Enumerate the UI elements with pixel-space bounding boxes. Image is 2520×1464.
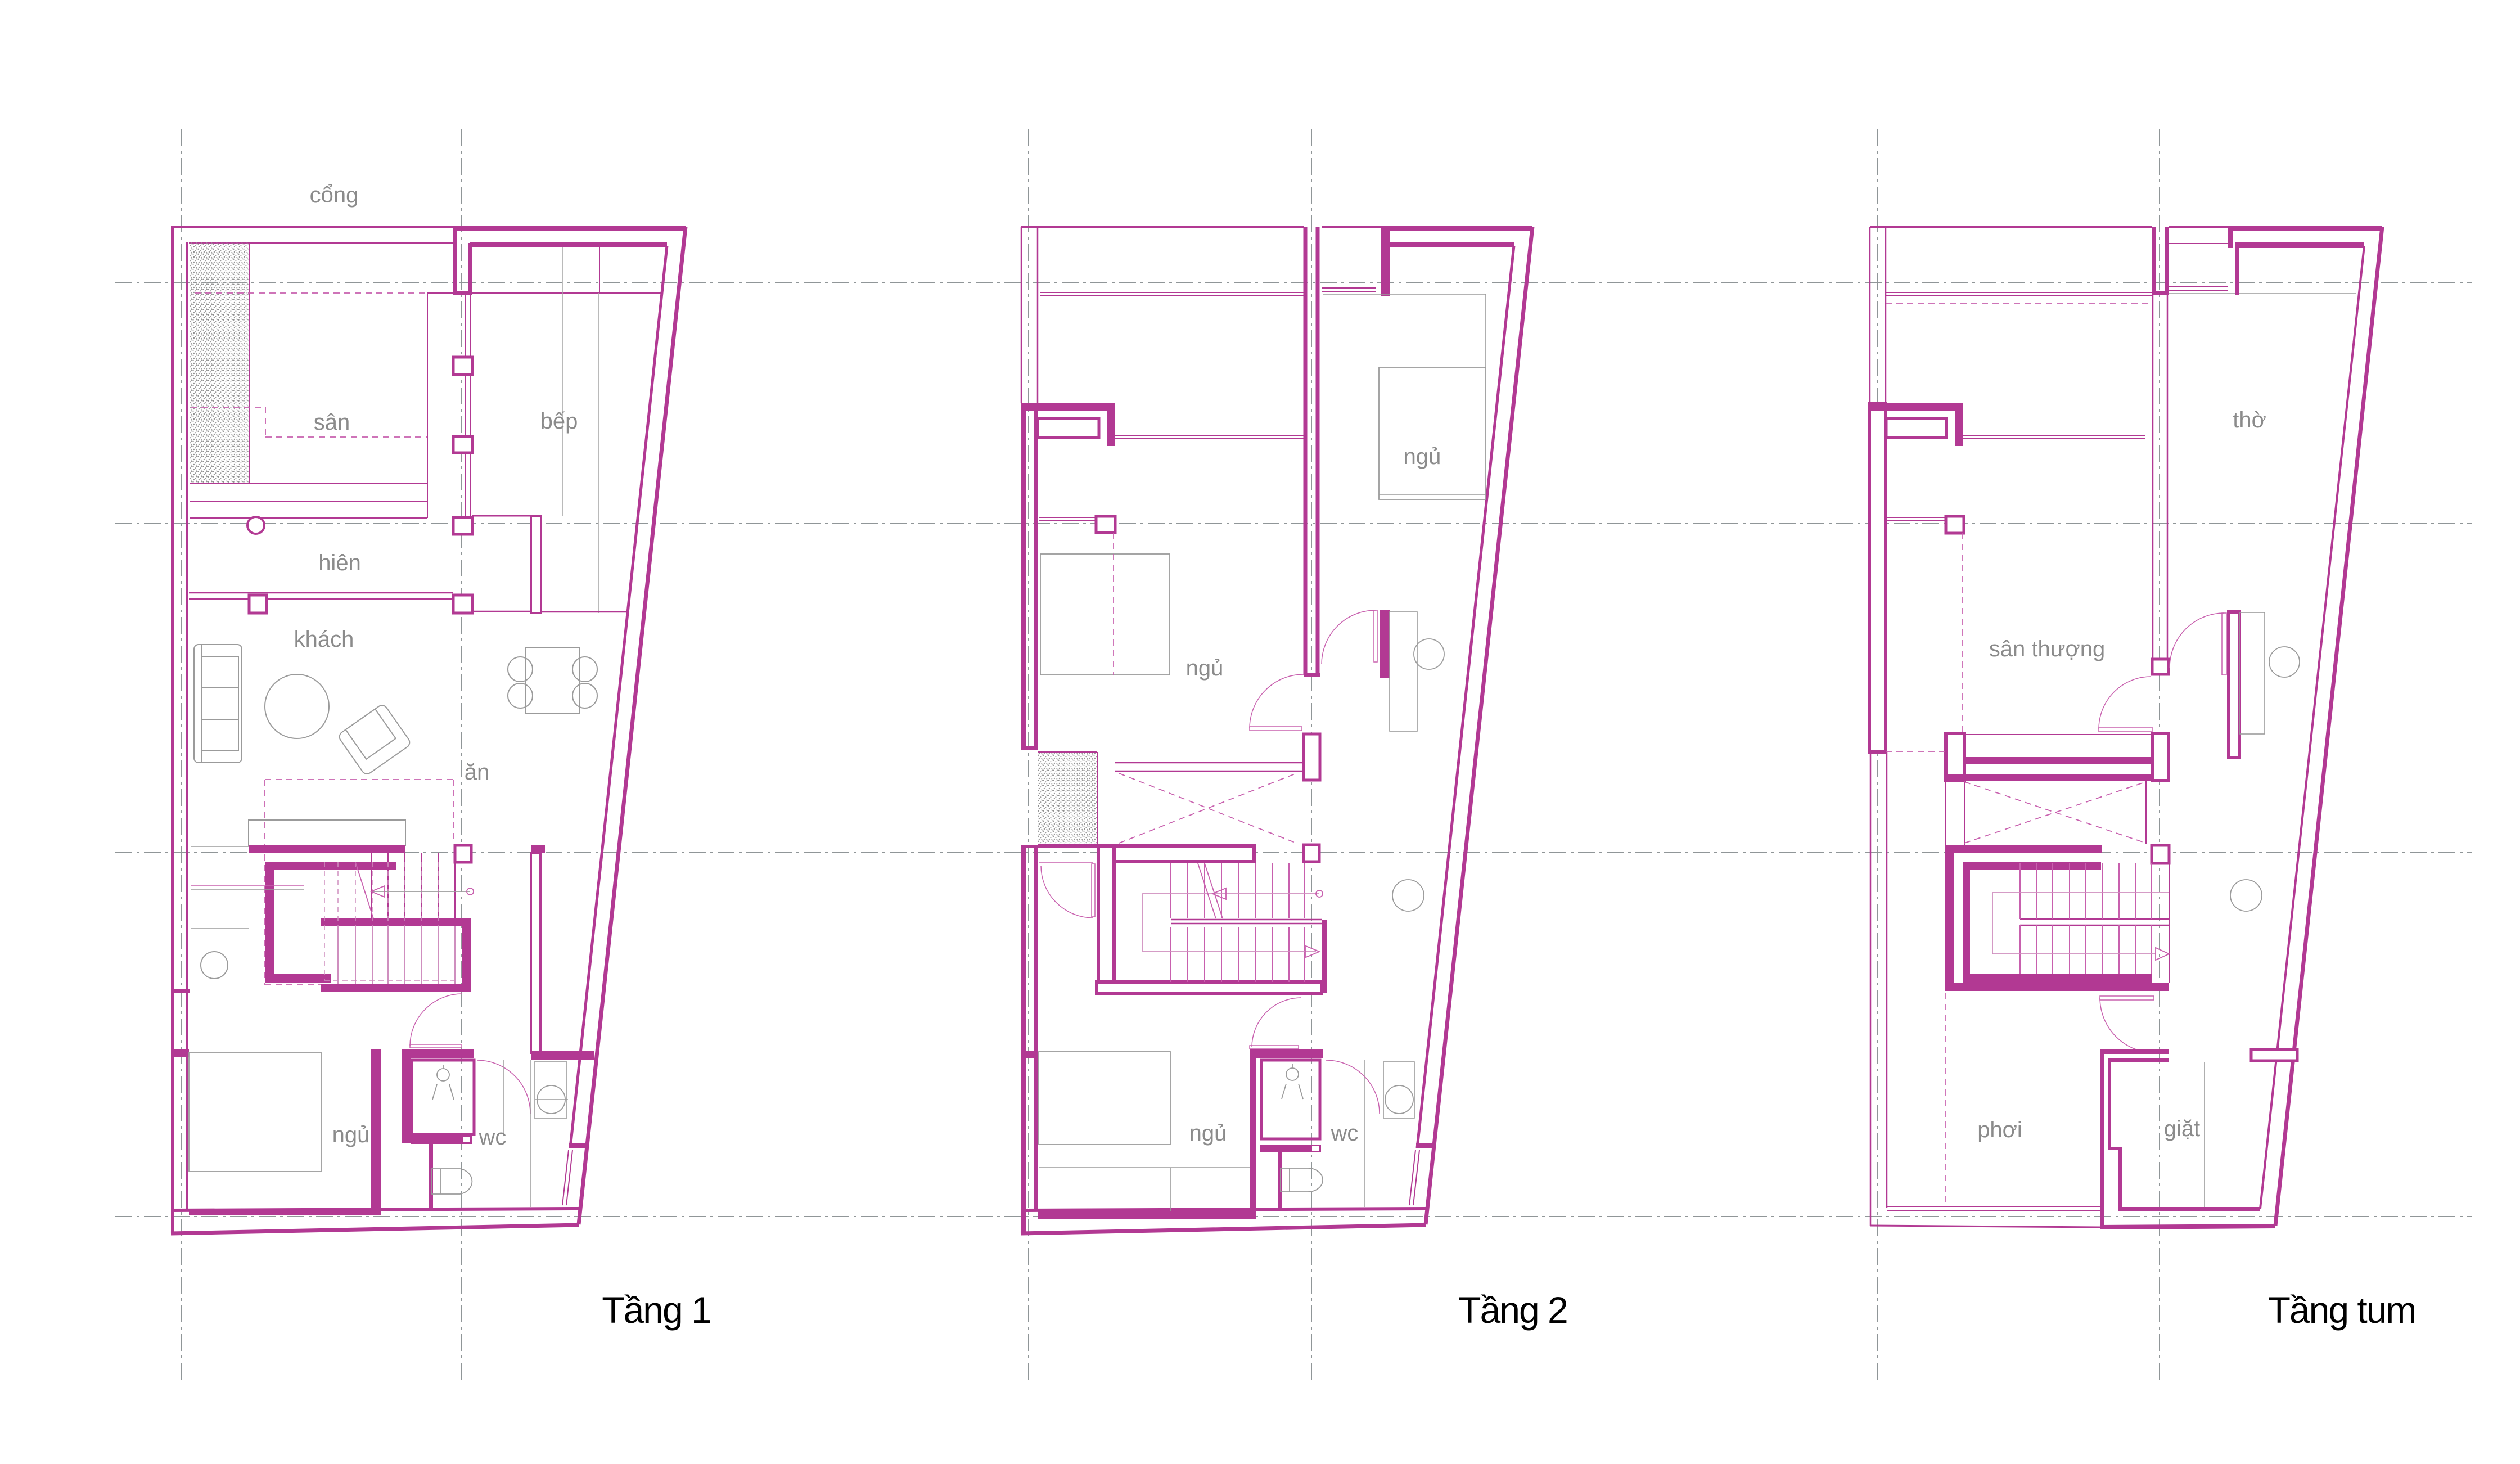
svg-text:ngủ: ngủ [1189, 1121, 1227, 1146]
svg-text:phơi: phơi [1977, 1118, 2022, 1142]
svg-text:Tầng 1: Tầng 1 [602, 1289, 710, 1331]
svg-text:Tầng tum: Tầng tum [2268, 1289, 2416, 1331]
svg-text:sân: sân [314, 410, 350, 435]
svg-text:giặt: giặt [2164, 1116, 2201, 1141]
svg-text:sân thượng: sân thượng [1989, 637, 2105, 661]
svg-text:ngủ: ngủ [332, 1123, 370, 1147]
svg-text:ngủ: ngủ [1404, 444, 1441, 469]
svg-text:thờ: thờ [2233, 408, 2266, 433]
svg-text:khách: khách [294, 627, 354, 652]
svg-text:ăn: ăn [465, 760, 490, 785]
svg-text:wc: wc [1331, 1121, 1359, 1146]
svg-text:Tầng 2: Tầng 2 [1458, 1289, 1567, 1331]
svg-text:bếp: bếp [540, 409, 578, 434]
svg-text:hiên: hiên [318, 551, 361, 575]
svg-text:cổng: cổng [310, 183, 359, 208]
svg-text:ngủ: ngủ [1186, 656, 1224, 681]
svg-text:wc: wc [479, 1125, 507, 1150]
